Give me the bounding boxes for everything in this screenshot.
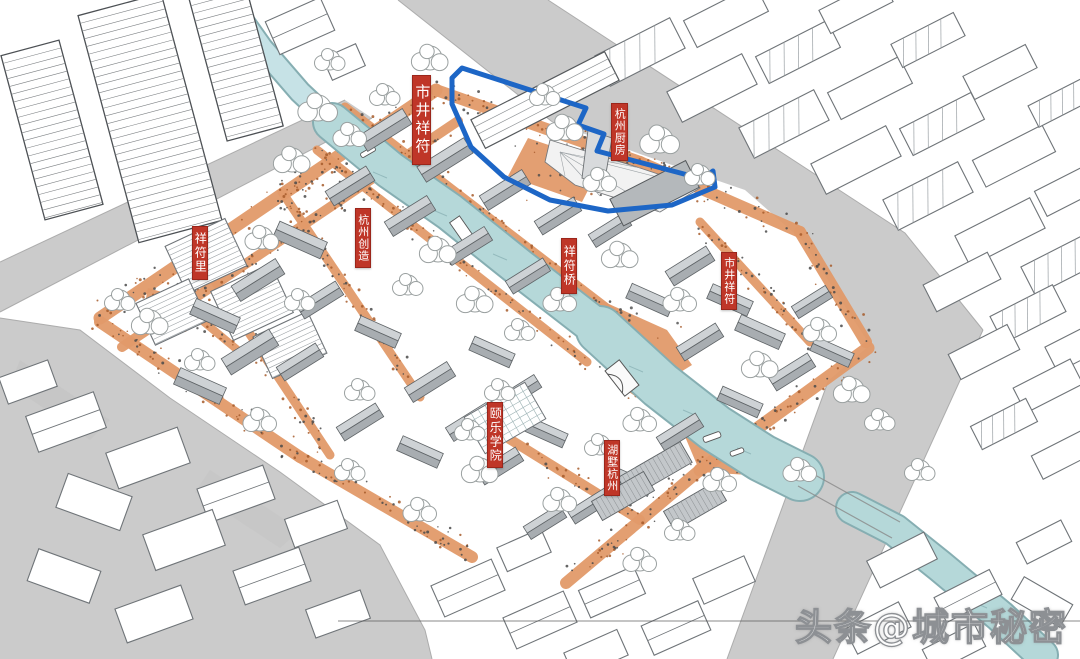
masterplan-illustration	[0, 0, 1080, 659]
label-xiangfu-qiao: 祥符桥	[561, 238, 577, 294]
label-yile-xueyuan: 颐乐学院	[487, 402, 503, 468]
label-hangzhou-chufang: 杭州厨房	[611, 103, 628, 161]
label-hushu-hangzhou: 湖墅杭州	[604, 440, 620, 496]
label-xiangfu-li: 祥符里	[192, 226, 208, 280]
screenshot-root: 市井祥符 杭州厨房 杭州创造 祥符里 祥符桥 市井祥符 颐乐学院 湖墅杭州 头条…	[0, 0, 1080, 659]
label-shijing-xiangfu-nw: 市井祥符	[412, 75, 431, 165]
label-shijing-xiangfu-east: 市井祥符	[721, 252, 737, 310]
label-hangzhou-chuangzao: 杭州创造	[355, 208, 371, 268]
watermark: 头条@城市秘密	[795, 597, 1068, 651]
